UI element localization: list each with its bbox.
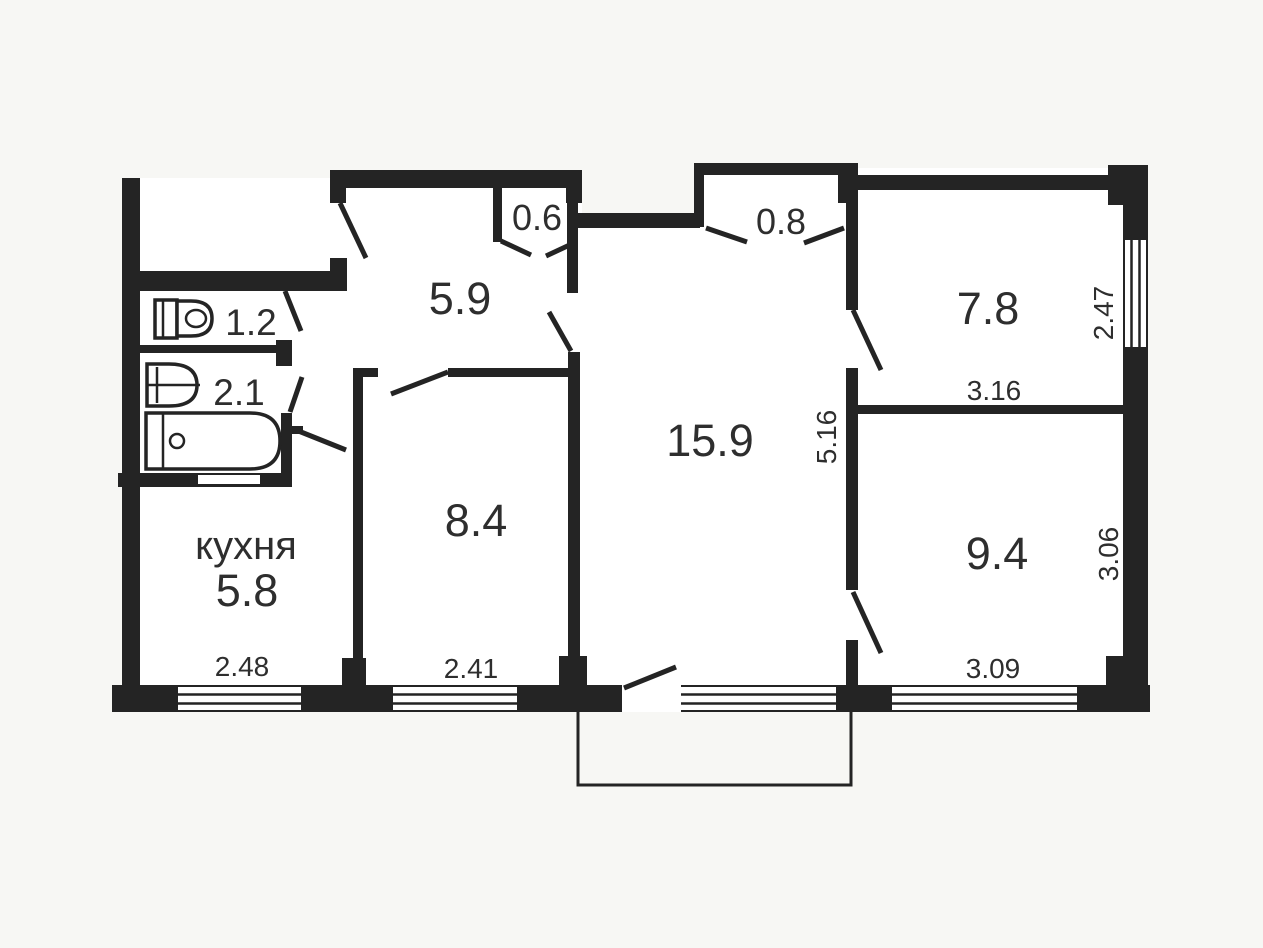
wall-exterior-left (122, 178, 140, 685)
wall-closet-large-top (694, 163, 858, 175)
dim-room-mid-width: 2.41 (444, 653, 499, 684)
dim-room-bottom-right-side: 3.06 (1093, 527, 1124, 582)
wall-stub (353, 368, 378, 377)
window-kitchen (178, 687, 301, 710)
window-living (681, 687, 836, 710)
wall-room-top-right-top (858, 175, 1123, 190)
wall-pillar (559, 656, 587, 685)
wall-pillar (1106, 656, 1124, 685)
wall-pillar (330, 258, 347, 291)
floor-plan: 5.9 0.6 0.8 1.2 2.1 15.9 7.8 8.4 9.4 кух… (0, 0, 1263, 948)
room-label-hallway: 5.9 (429, 273, 492, 324)
bathtub-outline (146, 413, 280, 469)
wall-pillar (566, 170, 582, 203)
wall-stub (846, 640, 858, 685)
dim-room-bottom-right-width: 3.09 (966, 653, 1021, 684)
sink-icon (147, 364, 200, 406)
wall-room-mid-left (353, 368, 363, 685)
wall-divider-78-94 (846, 405, 1125, 414)
wall-room-mid-right (568, 352, 580, 656)
wall-living-right-lower (846, 368, 858, 590)
dim-room-top-right-window: 2.47 (1088, 286, 1119, 341)
toilet-tank (155, 300, 177, 338)
window-room-mid (393, 687, 517, 710)
window-room-top-right (1125, 240, 1146, 347)
bathtub-icon (146, 413, 280, 469)
room-fill (846, 168, 1148, 685)
room-label-toilet: 1.2 (225, 302, 276, 343)
wall-hallway-top (330, 170, 582, 188)
toilet-icon (155, 300, 212, 338)
room-label-room-mid: 8.4 (445, 495, 508, 546)
room-label-living: 15.9 (666, 415, 754, 466)
wall-pillar (342, 658, 366, 685)
balcony-door-opening (622, 685, 681, 712)
room-fill (330, 170, 582, 685)
wall-closet-small-left (493, 188, 502, 242)
window-room-bottom-right (892, 687, 1077, 710)
dim-room-top-right-width: 3.16 (967, 375, 1022, 406)
dim-living-depth: 5.16 (811, 410, 842, 465)
room-label-room-bottom-right: 9.4 (966, 528, 1029, 579)
room-label-kitchen: 5.8 (216, 565, 279, 616)
room-label-closet-small: 0.6 (512, 197, 562, 238)
wall-living-top (578, 213, 700, 228)
room-label-closet-large: 0.8 (756, 201, 806, 242)
wall-living-right-upper (846, 173, 858, 310)
wall-closet-large-left (694, 175, 704, 227)
wall-pillar (330, 170, 346, 203)
room-label-bathroom: 2.1 (213, 372, 264, 413)
wall-room-mid-top (448, 368, 568, 377)
room-name-kitchen: кухня (195, 524, 297, 568)
wall-notch (198, 475, 260, 484)
dim-kitchen-width: 2.48 (215, 651, 270, 682)
wall-toilet-top (122, 271, 347, 291)
wall-pillar (276, 340, 292, 366)
wall-toilet-bottom (140, 345, 277, 353)
room-label-room-top-right: 7.8 (957, 283, 1020, 334)
